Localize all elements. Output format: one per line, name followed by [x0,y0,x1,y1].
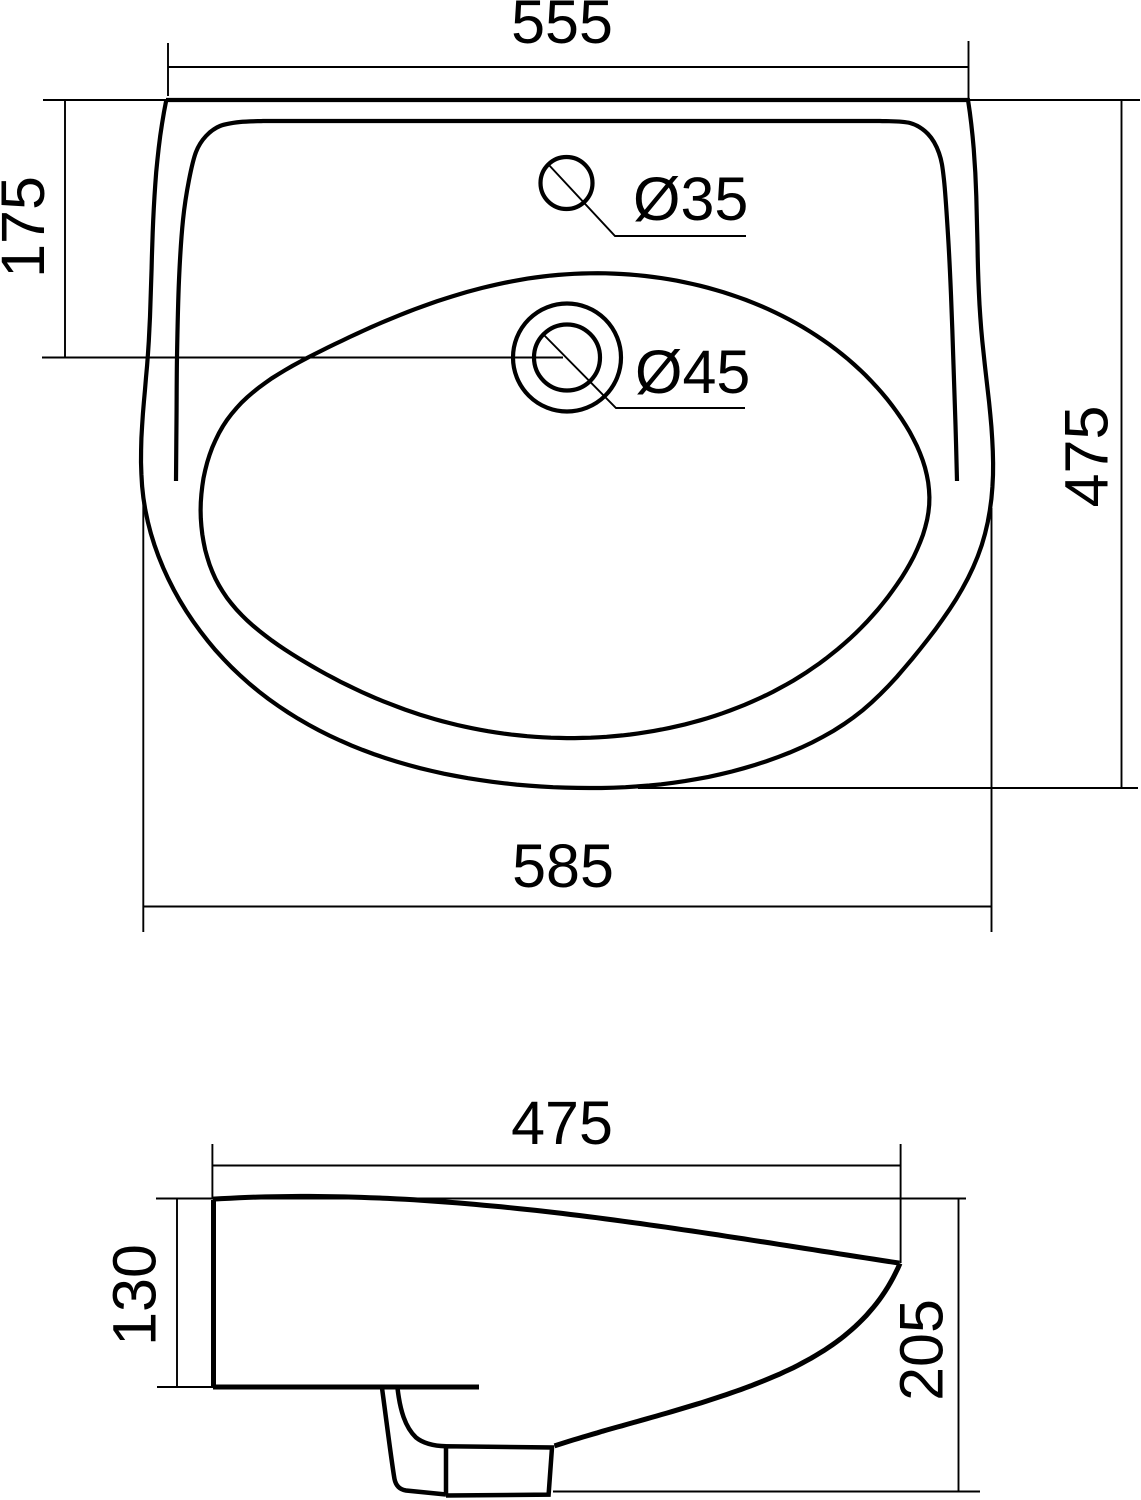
svg-text:Ø45: Ø45 [635,338,750,406]
svg-text:175: 175 [0,176,57,278]
svg-text:205: 205 [888,1299,956,1401]
svg-text:130: 130 [101,1244,169,1346]
svg-text:585: 585 [512,832,614,900]
svg-text:555: 555 [511,0,613,56]
svg-text:475: 475 [1053,406,1121,508]
svg-text:475: 475 [511,1089,613,1157]
svg-text:Ø35: Ø35 [633,165,748,233]
